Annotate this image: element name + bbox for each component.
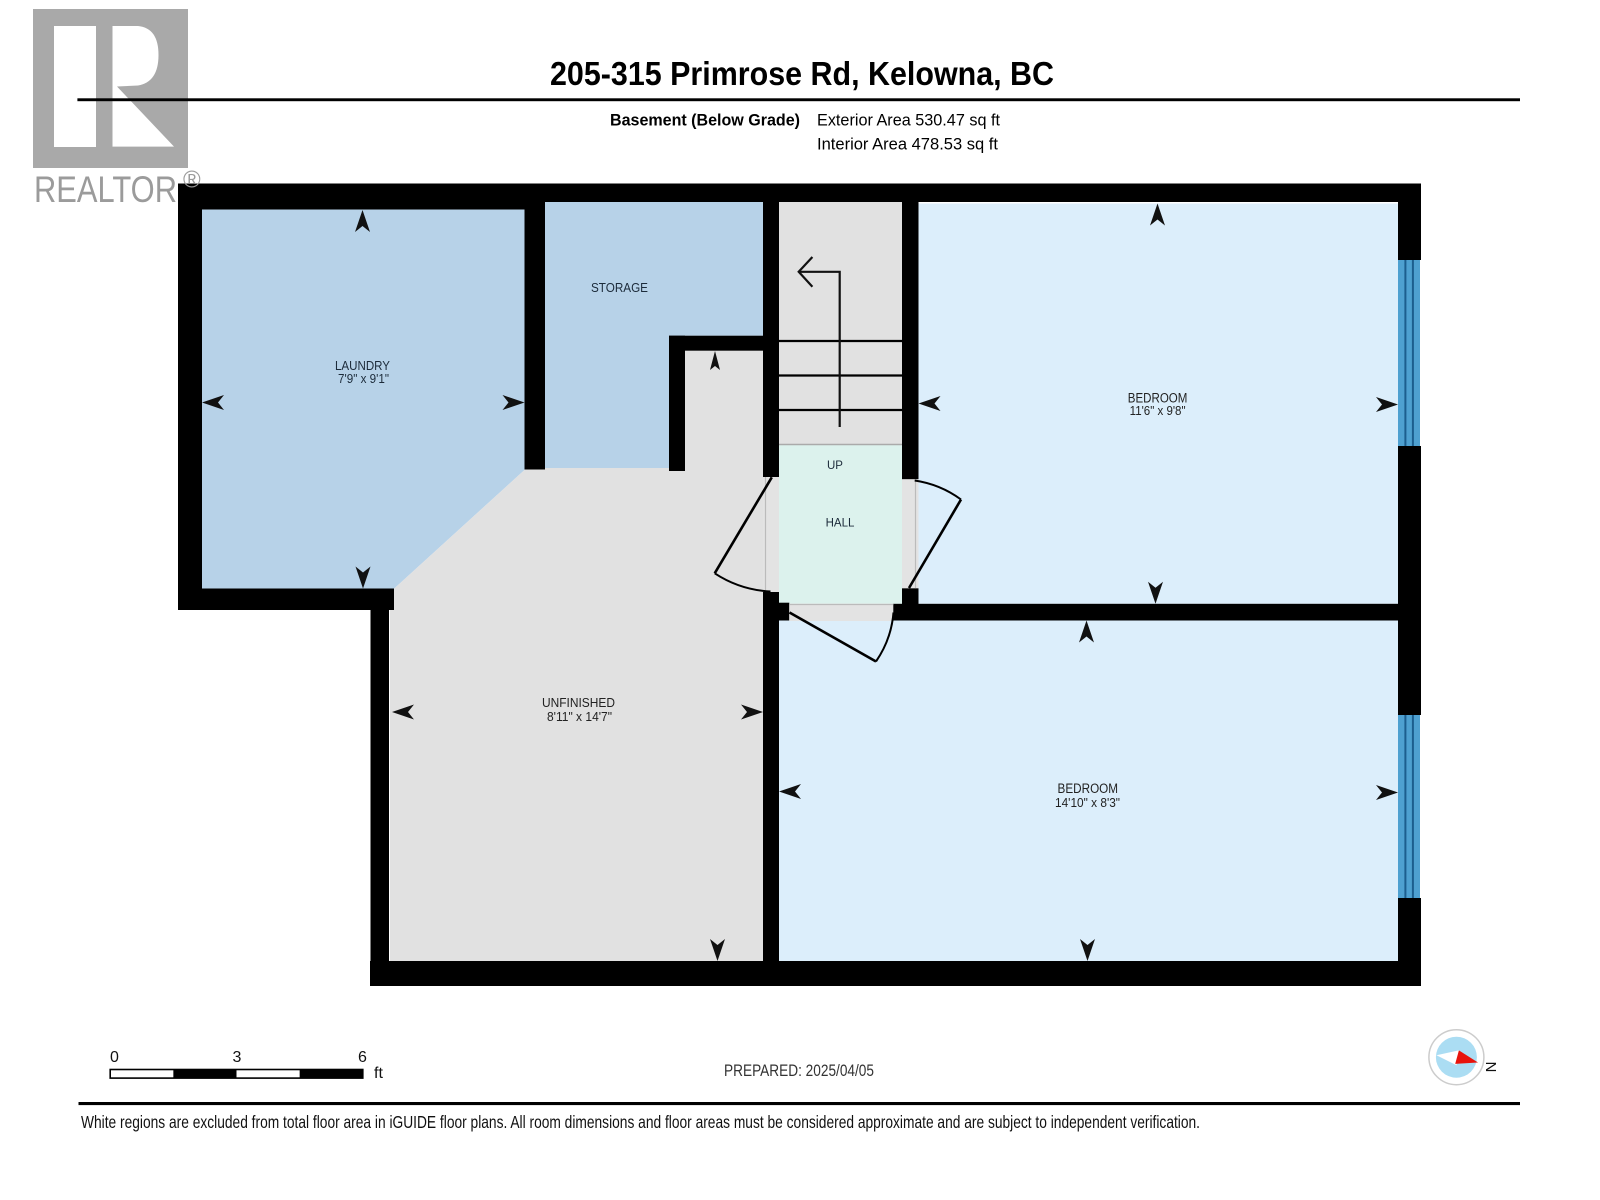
svg-text:14'10" x 8'3": 14'10" x 8'3" [1055, 795, 1120, 810]
svg-text:UP: UP [827, 460, 843, 472]
svg-text:PREPARED: 2025/04/05: PREPARED: 2025/04/05 [724, 1062, 874, 1080]
svg-text:STORAGE: STORAGE [591, 280, 648, 295]
svg-text:205-315 Primrose Rd, Kelowna,: 205-315 Primrose Rd, Kelowna, BC [550, 55, 1054, 92]
svg-text:Exterior Area 530.47 sq ft: Exterior Area 530.47 sq ft [817, 111, 1000, 130]
svg-text:White regions are excluded fro: White regions are excluded from total fl… [81, 1112, 1200, 1132]
svg-text:7'9" x 9'1": 7'9" x 9'1" [338, 371, 389, 386]
svg-text:6: 6 [358, 1049, 367, 1066]
svg-text:N: N [1482, 1062, 1499, 1073]
svg-text:Basement (Below Grade): Basement (Below Grade) [610, 111, 800, 130]
svg-text:UNFINISHED: UNFINISHED [542, 695, 615, 710]
svg-text:HALL: HALL [826, 518, 855, 530]
svg-text:®: ® [183, 167, 201, 194]
svg-text:3: 3 [233, 1049, 242, 1066]
svg-text:REALTOR: REALTOR [34, 169, 177, 210]
svg-text:8'11" x 14'7": 8'11" x 14'7" [547, 709, 612, 724]
svg-text:BEDROOM: BEDROOM [1058, 781, 1119, 796]
svg-text:0: 0 [110, 1049, 119, 1066]
svg-text:ft: ft [374, 1065, 383, 1082]
svg-text:11'6" x 9'8": 11'6" x 9'8" [1130, 403, 1186, 418]
svg-text:Interior Area 478.53 sq ft: Interior Area 478.53 sq ft [817, 135, 998, 154]
